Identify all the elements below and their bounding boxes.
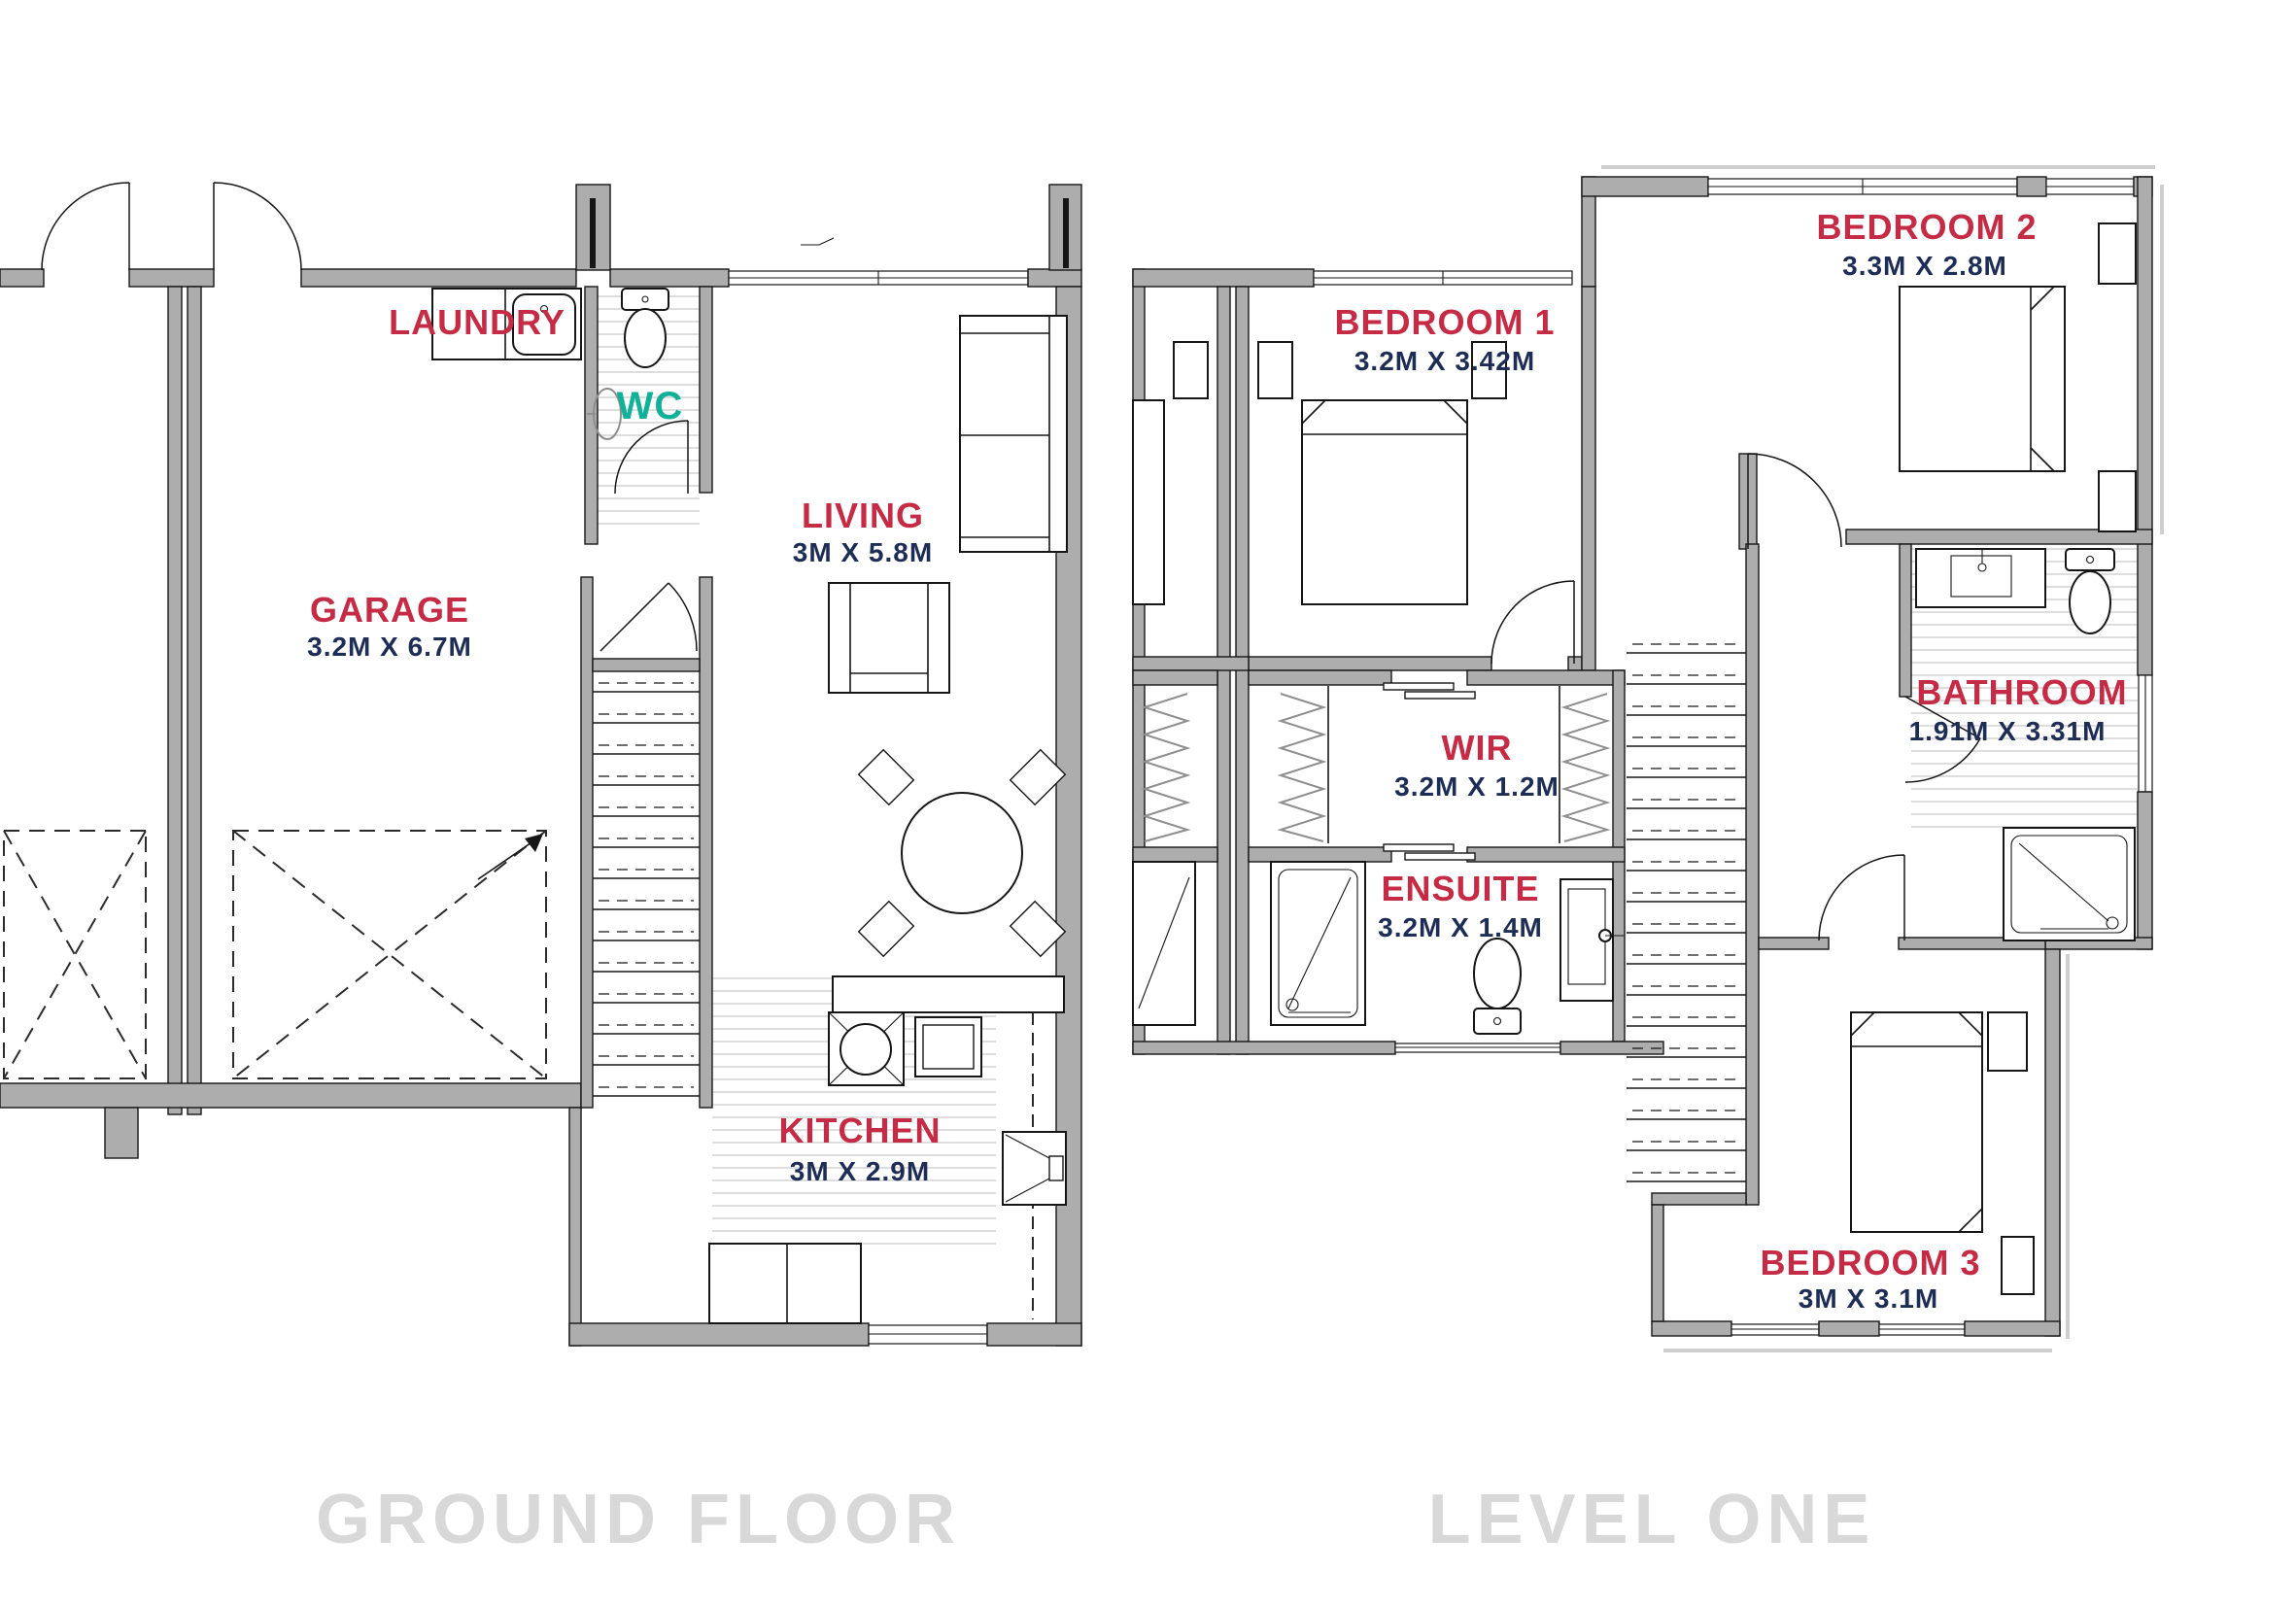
level-one-plan: BEDROOM 1 3.2M X 3.42M BEDROOM 2 3.3M X … [1133,167,2162,1558]
bedroom2-dims: 3.3M X 2.8M [1842,251,2007,281]
wall [301,269,576,287]
wc-toilet-bowl [625,309,666,367]
dining-chair [859,902,914,957]
stair-wall-right [700,577,712,1108]
ensuite-label: ENSUITE [1381,869,1539,908]
bedroom3-label: BEDROOM 3 [1760,1243,1980,1282]
party-wall [168,287,182,1114]
wall [1028,269,1081,287]
kitchen-bench [833,976,1064,1012]
bedside-table [1988,1012,2027,1071]
bedroom1-label: BEDROOM 1 [1334,302,1555,342]
stair-landing [593,659,700,671]
wall-stub [1568,657,1582,670]
sofa [960,316,1067,552]
sliding-door-bar [1405,853,1475,860]
bedroom1-bottom-wall [1249,657,1491,670]
wall [569,1108,581,1346]
bedroom3-dims: 3M X 3.1M [1799,1283,1938,1314]
ensuite-cistern [1474,1009,1521,1034]
garage-entry-arrowhead [525,834,543,852]
wall-right [2138,177,2152,675]
bed-bedroom3 [1851,1012,1982,1232]
bedroom3-left-wall [1652,1205,1663,1321]
kitchen-lower-bench [709,1244,861,1323]
bedroom1-dims: 3.2M X 3.42M [1354,346,1535,376]
bathroom-toilet-bowl [2070,571,2110,633]
bedroom2-top-wall [2017,177,2046,196]
dining-table [902,793,1022,913]
ensuite-shower [1271,862,1365,1025]
ensuite-dims: 3.2M X 1.4M [1378,912,1543,942]
bedroom2-label: BEDROOM 2 [1816,207,2037,247]
kitchen-dims: 3M X 2.9M [790,1156,930,1186]
sliding-door-bar [1384,683,1454,690]
ground-floor-plan: LAUNDRY WC LIVING 3M X 5.8M GARAGE 3.2M … [0,183,1081,1558]
wall [129,269,214,287]
wir-dims: 3.2M X 1.2M [1394,771,1559,802]
wall-right-lower [2045,949,2060,1336]
sliding-door-bar [1405,692,1475,699]
wall-mirrored [1133,670,1217,685]
kitchen-label: KITCHEN [779,1111,942,1150]
robe-hangers-mirrored [1145,694,1187,841]
wall [0,269,44,287]
stairs-nosings-l1 [1632,644,1740,1173]
bedside-table [2099,471,2136,531]
wir-top-wall [1467,670,1625,685]
stairs-treads [593,692,700,1096]
garage-car-space-mirrored [4,831,146,1078]
bedroom3-bottom-wall [1652,1321,1731,1336]
pantry-inner [1049,1156,1063,1180]
cooktop-inner [923,1025,974,1069]
bathroom-vanity [1916,549,2045,607]
bedside-table [2002,1237,2034,1294]
floor-plan-page: LAUNDRY WC LIVING 3M X 5.8M GARAGE 3.2M … [0,0,2296,1607]
garage-dims: 3.2M X 6.7M [307,632,472,662]
level-one-title: LEVEL ONE [1428,1481,1876,1558]
party-wall-stub [105,1108,138,1158]
ensuite-bottom-wall [1560,1042,1663,1054]
bathroom-dims: 1.91M X 3.31M [1909,716,2107,746]
bathroom-cistern [2066,549,2114,570]
bathroom-shower [2004,828,2135,940]
stair-wall-right [1746,544,1759,1205]
living-entry-arrow [801,238,834,245]
bedroom1-door [1491,581,1574,664]
garage-bottom-wall [0,1083,581,1108]
wir-bottom-wall [1249,847,1391,862]
bedside-table-mirrored [1174,342,1208,398]
bottom-wall [569,1323,869,1346]
bedroom1-right-wall [1582,287,1595,670]
wir-label: WIR [1442,728,1513,768]
stair-wall-left [581,577,593,1108]
bed-bedroom2 [1900,287,2065,471]
living-dims: 3M X 5.8M [793,537,933,567]
garage-label: GARAGE [310,590,469,630]
blade-wall-slot [590,198,596,268]
stairs-treads-l1 [1627,653,1746,1181]
wc-cistern [622,289,668,310]
living-label: LIVING [802,496,924,535]
entry-door [214,183,301,270]
bed-mirrored [1133,400,1164,604]
wall [610,269,729,287]
sliding-door-bar [1384,844,1454,851]
bedside-table [1258,342,1292,398]
top-wall [1133,269,1314,287]
bedroom3-bottom-wall [1965,1321,2060,1336]
bedroom3-door [1819,855,1904,940]
bedroom2-door [1748,454,1841,549]
garage-door [600,583,697,651]
stairs-nosings [599,683,694,1087]
party-wall [188,287,201,1114]
garage-car-space [233,831,546,1078]
wc-wall-left [585,287,598,544]
landing-wall [1652,1193,1746,1205]
bathroom-label: BATHROOM [1916,672,2127,712]
wc-wall-right [700,287,712,493]
blade-wall-slot [1063,198,1069,268]
bedroom3-top-wall [1759,938,1829,949]
laundry-label: LAUNDRY [389,302,565,342]
bedside-table [2099,223,2136,284]
wir-top-wall [1249,670,1391,685]
wall-mirrored [1133,847,1217,862]
wall-right [2138,792,2152,949]
ensuite-toilet-bowl [1474,939,1521,1009]
robe-hangers-right [1564,694,1607,841]
armchair [829,583,949,693]
ground-floor-title: GROUND FLOOR [316,1481,961,1558]
ensuite-bottom-wall [1133,1042,1395,1054]
garage-entry-arrow [478,838,537,879]
bedroom2-top-wall [1582,177,1708,196]
dining-chair [859,750,914,805]
wir-bottom-wall [1467,847,1625,862]
floor-plan-canvas: LAUNDRY WC LIVING 3M X 5.8M GARAGE 3.2M … [0,0,2296,1607]
bedroom3-bottom-wall [1819,1321,1879,1336]
wall-mirrored [1133,657,1249,670]
bottom-wall [987,1323,1081,1346]
wc-label: WC [617,385,684,427]
entry-door-mirrored [42,183,129,270]
robe-hangers-left [1281,694,1323,841]
bed-bedroom1 [1302,400,1467,604]
kitchen-sink [840,1024,891,1075]
bathroom-left-wall [1900,544,1911,697]
